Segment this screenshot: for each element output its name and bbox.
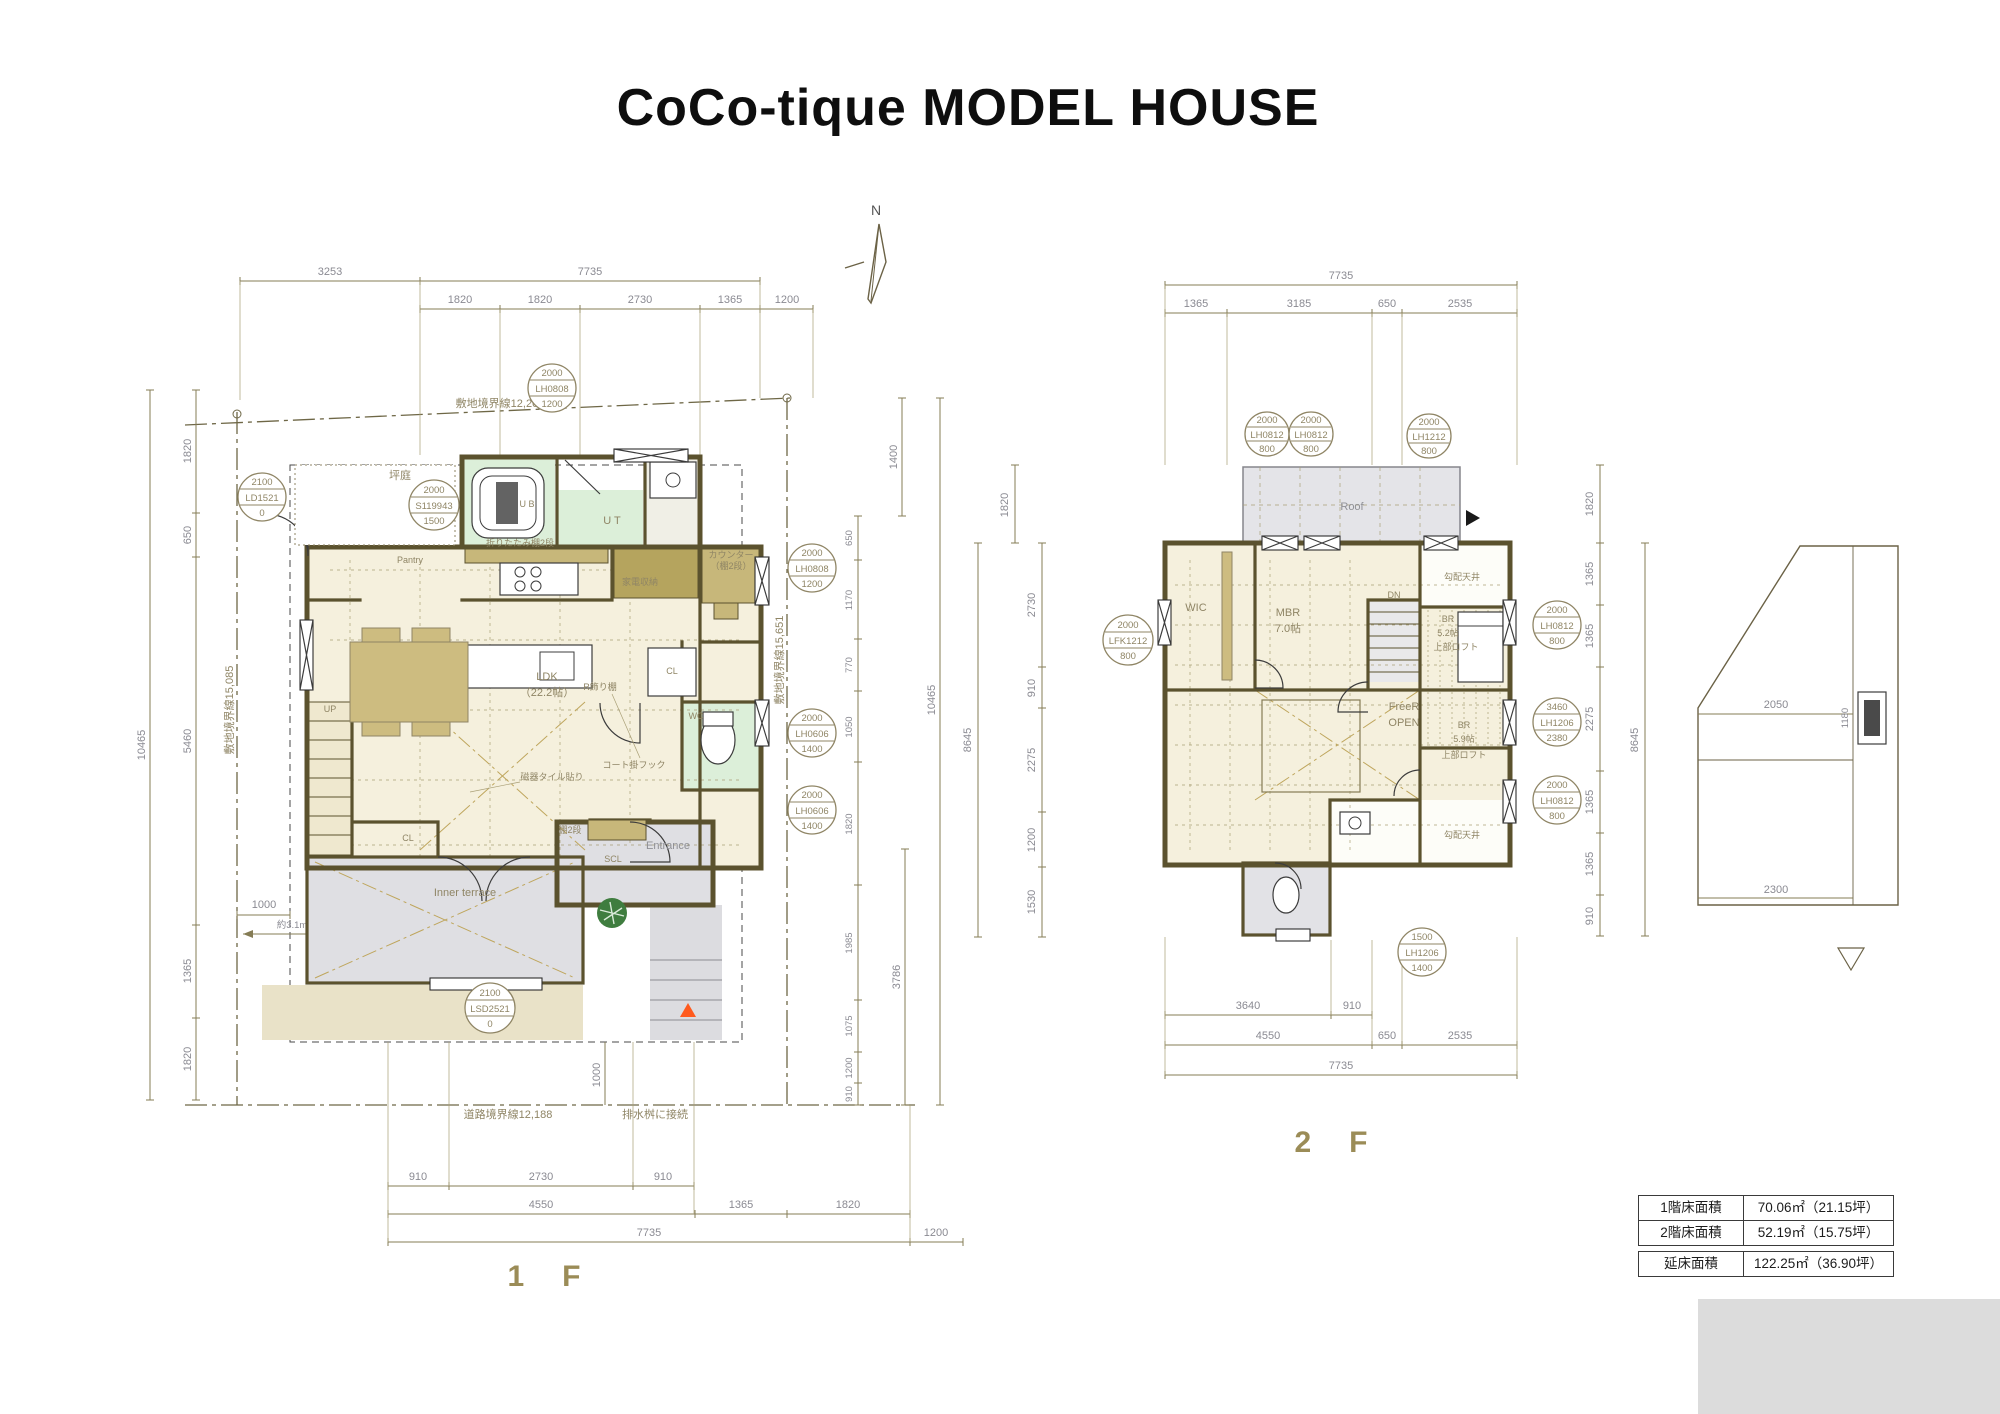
svg-text:U T: U T	[603, 515, 621, 527]
svg-text:Entrance: Entrance	[646, 840, 690, 852]
svg-text:1075: 1075	[844, 1015, 855, 1036]
svg-text:1500: 1500	[423, 516, 444, 527]
svg-text:LH1212: LH1212	[1412, 432, 1445, 443]
floor1-plan: 敷地境界線12,203 敷地境界線15,085 敷地境界線15,651 道路境界…	[136, 266, 963, 1293]
svg-text:7735: 7735	[1329, 1060, 1353, 1072]
svg-text:1050: 1050	[844, 716, 855, 737]
table-row: 延床面積 122.25㎡（36.90坪）	[1639, 1252, 1893, 1276]
svg-text:1365: 1365	[1584, 624, 1596, 648]
svg-text:5.9帖: 5.9帖	[1453, 733, 1475, 744]
side-elevation: 2050 1180 2300	[1698, 546, 1898, 970]
svg-text:1000: 1000	[591, 1063, 603, 1087]
svg-text:2000: 2000	[801, 713, 822, 724]
svg-text:2000: 2000	[1418, 417, 1439, 428]
svg-text:Inner terrace: Inner terrace	[434, 887, 496, 899]
svg-text:2535: 2535	[1448, 298, 1472, 310]
north-arrow-icon: N	[845, 202, 886, 303]
svg-text:5460: 5460	[182, 729, 194, 753]
window-spec-f1-6: 2100LSD25210	[465, 983, 515, 1033]
svg-text:1200: 1200	[801, 579, 822, 590]
area-table-upper: 1階床面積 70.06㎡（21.15坪） 2階床面積 52.19㎡（15.75坪…	[1638, 1195, 1894, 1246]
svg-text:2100: 2100	[479, 988, 500, 999]
area-value: 52.19㎡（15.75坪）	[1744, 1221, 1893, 1245]
svg-text:2275: 2275	[1026, 748, 1038, 772]
svg-text:DN: DN	[1388, 590, 1401, 600]
svg-text:3640: 3640	[1236, 1000, 1260, 1012]
svg-text:WC: WC	[689, 711, 704, 721]
svg-text:2380: 2380	[1546, 733, 1567, 744]
svg-text:上部ロフト: 上部ロフト	[1433, 641, 1478, 652]
svg-text:LH0808: LH0808	[795, 564, 828, 575]
svg-text:4550: 4550	[1256, 1030, 1280, 1042]
svg-text:910: 910	[1584, 907, 1596, 925]
svg-text:コート掛フック: コート掛フック	[602, 759, 665, 770]
area-table-lower: 延床面積 122.25㎡（36.90坪）	[1638, 1251, 1894, 1277]
svg-text:1000: 1000	[252, 899, 276, 911]
svg-text:650: 650	[844, 530, 855, 546]
svg-text:カウンター: カウンター	[708, 550, 753, 560]
area-label: 1階床面積	[1639, 1196, 1744, 1220]
svg-text:2730: 2730	[529, 1171, 553, 1183]
svg-text:800: 800	[1259, 444, 1275, 455]
area-value: 122.25㎡（36.90坪）	[1744, 1252, 1893, 1276]
table-row: 1階床面積 70.06㎡（21.15坪）	[1639, 1196, 1893, 1220]
floor1-dims-top: 3253 7735 1820 1820 2730 1365 1200	[240, 266, 813, 455]
svg-text:2000: 2000	[1546, 605, 1567, 616]
svg-text:1365: 1365	[729, 1199, 753, 1211]
svg-text:坪庭: 坪庭	[389, 468, 411, 482]
svg-text:2000: 2000	[1546, 780, 1567, 791]
svg-text:910: 910	[1343, 1000, 1361, 1012]
svg-text:上部ロフト: 上部ロフト	[1441, 749, 1486, 760]
svg-text:1200: 1200	[924, 1227, 948, 1239]
svg-text:0: 0	[259, 508, 264, 519]
svg-text:Roof: Roof	[1340, 501, 1364, 513]
svg-text:7735: 7735	[1329, 270, 1353, 282]
table-row: 2階床面積 52.19㎡（15.75坪）	[1639, 1220, 1893, 1245]
svg-text:1820: 1820	[836, 1199, 860, 1211]
svg-text:1985: 1985	[844, 932, 855, 953]
svg-text:1820: 1820	[528, 294, 552, 306]
svg-text:800: 800	[1120, 651, 1136, 662]
svg-text:910: 910	[844, 1086, 855, 1102]
svg-text:7735: 7735	[578, 266, 602, 278]
svg-text:2535: 2535	[1448, 1030, 1472, 1042]
floor2-dims-left: 1820 2730 910 2275 1200 1530 8645	[962, 465, 1046, 937]
svg-text:1365: 1365	[1584, 790, 1596, 814]
svg-text:家電収納: 家電収納	[622, 576, 658, 587]
window-spec-f1-5: 2000LH06061400	[788, 786, 836, 834]
floor2-dims-top: 7735 1365 3185 650 2535	[1165, 270, 1517, 465]
window-spec-f2-1: 2000LH0812800	[1289, 412, 1333, 456]
svg-text:LDK: LDK	[536, 671, 558, 683]
window-spec-f2-3: 2000LFK1212800	[1103, 615, 1153, 665]
svg-text:LSD2521: LSD2521	[470, 1004, 510, 1015]
svg-text:1820: 1820	[844, 813, 855, 834]
svg-text:910: 910	[1026, 679, 1038, 697]
window-spec-f1-2: 2100LD15210	[238, 473, 286, 521]
svg-text:2000: 2000	[1300, 415, 1321, 426]
page-title: CoCo-tique MODEL HOUSE	[0, 78, 1936, 138]
svg-text:LH0812: LH0812	[1250, 430, 1283, 441]
svg-text:R飾り棚: R飾り棚	[583, 681, 617, 692]
svg-text:WIC: WIC	[1185, 602, 1206, 614]
svg-text:CL: CL	[666, 666, 678, 676]
floor2-dims-right: 1820 1365 1365 2275 1365 1365 910 8645	[1584, 465, 1649, 936]
window-spec-f1-4: 2000LH06061400	[788, 709, 836, 757]
svg-text:7.0帖: 7.0帖	[1275, 622, 1301, 635]
svg-text:約3.1m: 約3.1m	[277, 919, 308, 931]
svg-text:1400: 1400	[801, 821, 822, 832]
page: CoCo-tique MODEL HOUSE N 敷地境界線12,203 敷地境…	[0, 0, 2000, 1414]
svg-text:3786: 3786	[891, 965, 903, 989]
svg-text:650: 650	[182, 526, 194, 544]
svg-text:1820: 1820	[182, 439, 194, 463]
svg-text:MBR: MBR	[1276, 607, 1301, 619]
svg-text:2000: 2000	[801, 548, 822, 559]
svg-text:磁器タイル貼り: 磁器タイル貼り	[520, 771, 583, 782]
svg-text:LH0812: LH0812	[1294, 430, 1327, 441]
svg-text:8645: 8645	[962, 728, 974, 752]
floor1-dims-bottom: 1000 910 2730 910 4550 1365 1820 7735 12…	[388, 1042, 963, 1246]
svg-text:1820: 1820	[182, 1047, 194, 1071]
svg-text:2000: 2000	[1256, 415, 1277, 426]
window-spec-f2-7: 1500LH12061400	[1398, 928, 1446, 976]
svg-text:1500: 1500	[1411, 932, 1432, 943]
svg-text:LH0606: LH0606	[795, 729, 828, 740]
svg-text:1365: 1365	[1584, 562, 1596, 586]
svg-text:10465: 10465	[926, 685, 938, 716]
svg-text:800: 800	[1303, 444, 1319, 455]
svg-text:Pantry: Pantry	[397, 555, 424, 565]
svg-text:1820: 1820	[1584, 492, 1596, 516]
floor1-dims-right: 650 1170 770 1050 1820 1985 1075 1200 91…	[844, 398, 944, 1105]
svg-text:1365: 1365	[1584, 852, 1596, 876]
svg-text:LFK1212: LFK1212	[1109, 636, 1148, 647]
svg-text:910: 910	[654, 1171, 672, 1183]
window-spec-f1-3: 2000LH08081200	[788, 544, 836, 592]
svg-text:5.2帖: 5.2帖	[1437, 627, 1459, 638]
svg-text:2275: 2275	[1584, 707, 1596, 731]
window-spec-f2-5: 3460LH12062380	[1533, 698, 1581, 746]
svg-text:UP: UP	[324, 704, 337, 714]
area-label: 2階床面積	[1639, 1221, 1744, 1245]
svg-text:650: 650	[1378, 298, 1396, 310]
window-spec-f1-0: 2000LH08081200	[528, 364, 576, 412]
svg-text:2000: 2000	[801, 790, 822, 801]
svg-text:800: 800	[1549, 636, 1565, 647]
svg-text:OPEN: OPEN	[1388, 717, 1419, 729]
svg-text:1200: 1200	[1026, 828, 1038, 852]
svg-text:2000: 2000	[1117, 620, 1138, 631]
svg-text:LH0606: LH0606	[795, 806, 828, 817]
svg-text:LH1206: LH1206	[1540, 718, 1573, 729]
svg-text:勾配天井: 勾配天井	[1444, 571, 1480, 582]
svg-text:4550: 4550	[529, 1199, 553, 1211]
floor2-house	[1158, 467, 1516, 941]
svg-text:（棚2段）: （棚2段）	[710, 560, 751, 571]
svg-text:8645: 8645	[1629, 728, 1641, 752]
corner-watermark-box	[1698, 1299, 2000, 1414]
boundary-right-label: 敷地境界線15,651	[772, 616, 786, 705]
svg-text:1170: 1170	[844, 590, 855, 610]
svg-text:1400: 1400	[1411, 963, 1432, 974]
window-spec-f2-0: 2000LH0812800	[1245, 412, 1289, 456]
svg-text:2730: 2730	[628, 294, 652, 306]
svg-text:1400: 1400	[888, 445, 900, 469]
boundary-bottom-label: 道路境界線12,188	[464, 1107, 553, 1121]
svg-text:2000: 2000	[541, 368, 562, 379]
svg-text:棚2段: 棚2段	[558, 824, 581, 835]
svg-text:770: 770	[844, 657, 855, 673]
svg-text:U B: U B	[519, 499, 534, 509]
elevation-dim-width: 2050	[1764, 699, 1788, 711]
svg-text:1200: 1200	[541, 399, 562, 410]
svg-text:1200: 1200	[844, 1057, 855, 1078]
svg-text:0: 0	[487, 1019, 492, 1030]
window-spec-f2-2: 2000LH1212800	[1407, 414, 1451, 458]
svg-text:1365: 1365	[1184, 298, 1208, 310]
svg-text:1820: 1820	[448, 294, 472, 306]
floor1-caption: 1 F	[507, 1260, 584, 1293]
window-spec-f2-4: 2000LH0812800	[1533, 601, 1581, 649]
svg-text:1365: 1365	[182, 959, 194, 983]
drain-note: 排水桝に接続	[622, 1107, 688, 1121]
svg-text:LD1521: LD1521	[245, 493, 278, 504]
svg-text:1820: 1820	[999, 493, 1011, 517]
floor2-caption: 2 F	[1294, 1126, 1371, 1159]
svg-text:650: 650	[1378, 1030, 1396, 1042]
svg-text:1365: 1365	[718, 294, 742, 306]
svg-text:LH0812: LH0812	[1540, 796, 1573, 807]
svg-text:FreeR: FreeR	[1389, 701, 1420, 713]
elevation-dim-bottom: 2300	[1764, 884, 1788, 896]
svg-text:3185: 3185	[1287, 298, 1311, 310]
svg-text:2000: 2000	[423, 485, 444, 496]
svg-text:3253: 3253	[318, 266, 342, 278]
svg-text:勾配天井: 勾配天井	[1444, 829, 1480, 840]
svg-text:800: 800	[1549, 811, 1565, 822]
svg-text:LH0808: LH0808	[535, 384, 568, 395]
window-spec-f2-6: 2000LH0812800	[1533, 776, 1581, 824]
svg-text:800: 800	[1421, 446, 1437, 457]
svg-text:1530: 1530	[1026, 890, 1038, 914]
svg-text:10465: 10465	[136, 730, 148, 761]
svg-text:CL: CL	[402, 833, 414, 843]
svg-text:S119943: S119943	[415, 501, 452, 512]
north-label: N	[871, 202, 881, 218]
svg-text:（22.2帖）: （22.2帖）	[520, 686, 574, 699]
svg-text:1400: 1400	[801, 744, 822, 755]
svg-text:2100: 2100	[251, 477, 272, 488]
svg-text:LH1206: LH1206	[1405, 948, 1438, 959]
window-spec-f1-1: 2000S1199431500	[409, 480, 459, 530]
svg-text:2730: 2730	[1026, 593, 1038, 617]
svg-text:3460: 3460	[1546, 702, 1567, 713]
elevation-dim-window: 1180	[1840, 708, 1851, 728]
area-label: 延床面積	[1639, 1252, 1744, 1276]
svg-text:BR: BR	[1442, 614, 1455, 624]
svg-text:910: 910	[409, 1171, 427, 1183]
svg-text:SCL: SCL	[604, 854, 622, 864]
area-value: 70.06㎡（21.15坪）	[1744, 1196, 1893, 1220]
svg-text:折りたたみ棚2段: 折りたたみ棚2段	[486, 537, 554, 548]
boundary-left-label: 敷地境界線15,085	[222, 666, 236, 755]
svg-text:1200: 1200	[775, 294, 799, 306]
floor2-dims-bottom: 3640 910 4550 650 2535 7735	[1165, 937, 1517, 1079]
svg-text:BR: BR	[1458, 720, 1471, 730]
area-table: 1階床面積 70.06㎡（21.15坪） 2階床面積 52.19㎡（15.75坪…	[1638, 1195, 1894, 1277]
svg-text:LH0812: LH0812	[1540, 621, 1573, 632]
floor2-plan: 7735 1365 3185 650 2535 1820 2730 910 22…	[962, 270, 1649, 1159]
svg-text:7735: 7735	[637, 1227, 661, 1239]
